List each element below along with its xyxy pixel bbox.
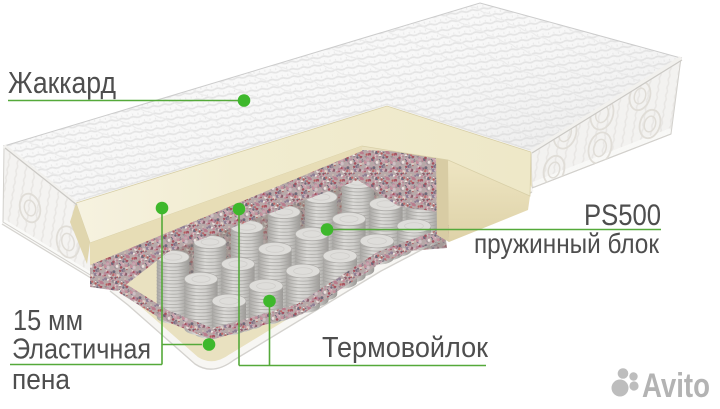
svg-text:Эластичная: Эластичная: [12, 334, 151, 366]
svg-text:15 мм: 15 мм: [13, 305, 83, 337]
svg-text:Avito: Avito: [642, 367, 710, 405]
svg-text:Термовойлок: Термовойлок: [322, 332, 488, 364]
svg-text:пена: пена: [12, 364, 71, 396]
svg-text:Жаккард: Жаккард: [8, 65, 116, 100]
svg-text:пружинный блок: пружинный блок: [474, 228, 660, 259]
